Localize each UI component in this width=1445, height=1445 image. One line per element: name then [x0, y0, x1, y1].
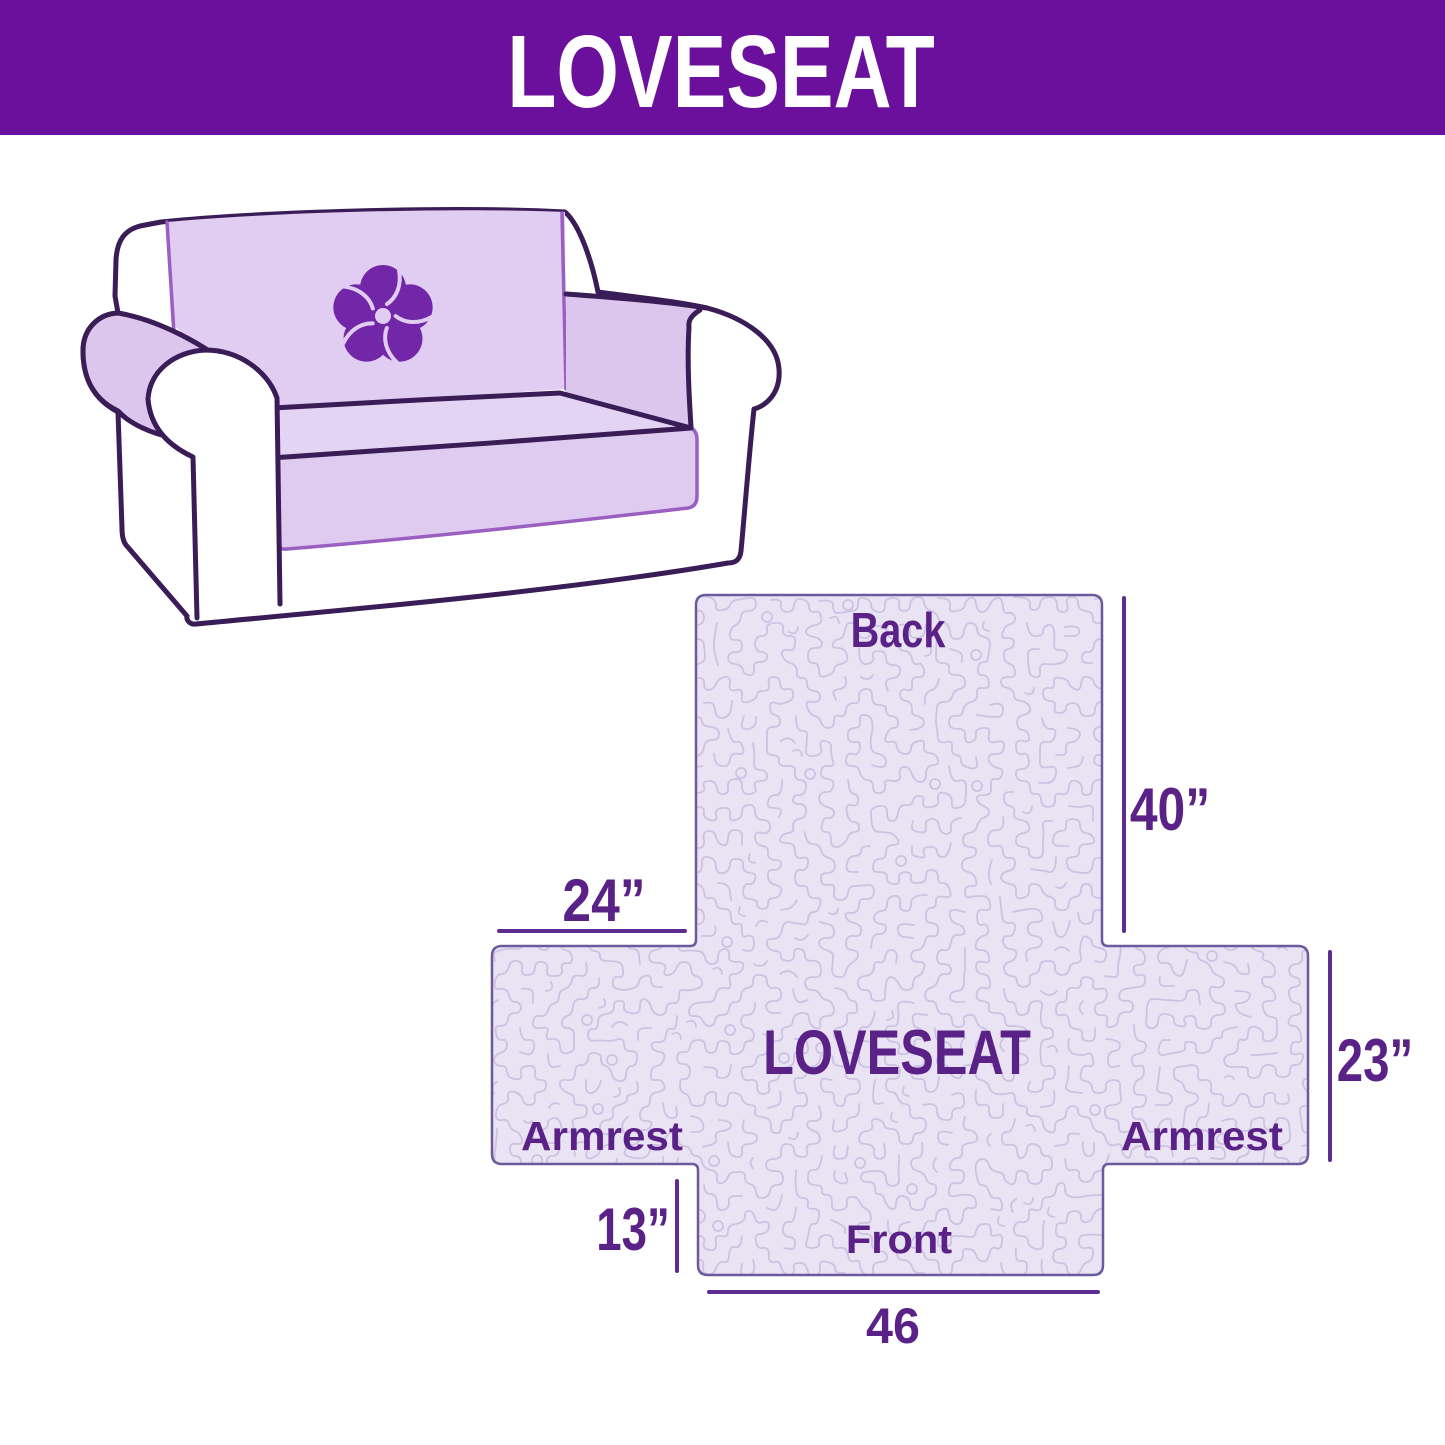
svg-text:23”: 23”	[1337, 1028, 1413, 1095]
svg-text:Armrest: Armrest	[521, 1113, 683, 1159]
svg-text:LOVESEAT: LOVESEAT	[507, 13, 935, 129]
svg-text:Front: Front	[846, 1217, 953, 1262]
svg-text:24”: 24”	[562, 866, 645, 934]
svg-text:46: 46	[866, 1298, 920, 1354]
svg-text:13”: 13”	[596, 1197, 669, 1263]
svg-text:40”: 40”	[1130, 776, 1210, 843]
svg-text:Armrest: Armrest	[1121, 1113, 1283, 1159]
svg-text:Back: Back	[851, 604, 946, 658]
svg-text:LOVESEAT: LOVESEAT	[763, 1018, 1031, 1089]
